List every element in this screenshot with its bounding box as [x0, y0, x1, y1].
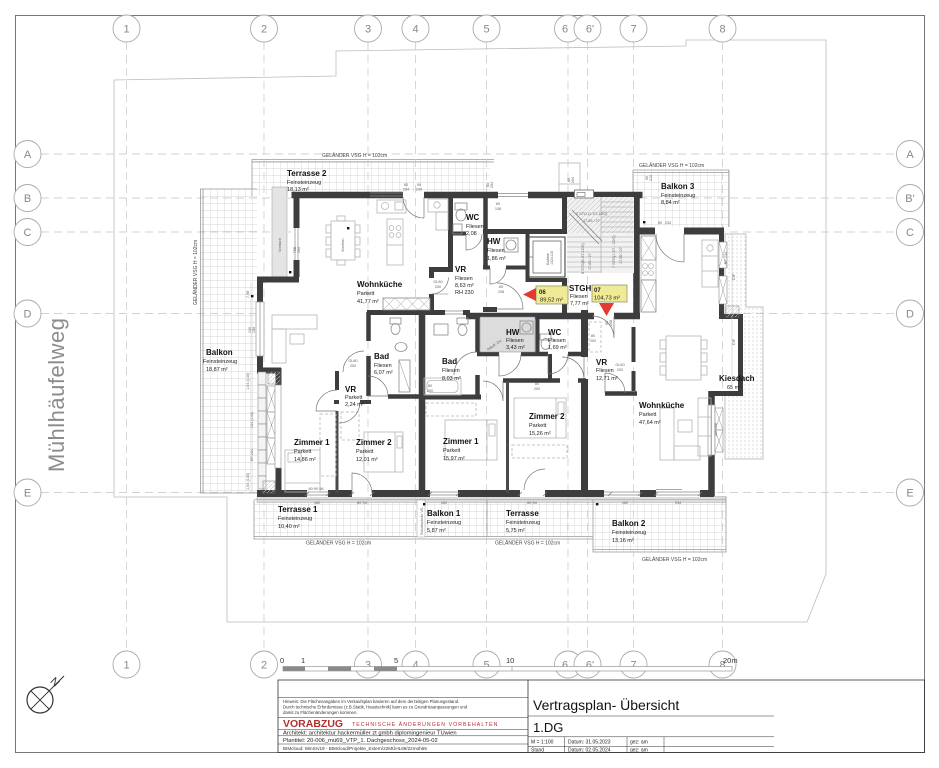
svg-text:10,40 m²: 10,40 m² — [278, 524, 300, 530]
svg-text:A: A — [906, 149, 914, 161]
svg-text:Schallschutz VS: Schallschutz VS — [420, 507, 424, 535]
svg-text:Feinsteinzeug: Feinsteinzeug — [278, 516, 312, 522]
svg-text:Fliesen: Fliesen — [487, 248, 505, 254]
svg-text:Terrasse 1: Terrasse 1 — [278, 505, 318, 514]
svg-text:DIF: DIF — [732, 338, 736, 345]
svg-text:D: D — [906, 309, 914, 321]
svg-text:Kiesdach: Kiesdach — [719, 374, 755, 383]
svg-text:3: 3 — [365, 24, 371, 36]
svg-text:VR: VR — [455, 265, 466, 274]
svg-text:Zimmer 1: Zimmer 1 — [294, 438, 330, 447]
svg-text:162: 162 — [314, 501, 320, 505]
svg-text:Fliesen: Fliesen — [442, 368, 460, 374]
svg-text:GELÄNDER VSG H = 102cm: GELÄNDER VSG H = 102cm — [322, 152, 387, 159]
svg-text:2: 2 — [261, 660, 267, 672]
svg-text:204: 204 — [297, 247, 301, 253]
svg-text:damit zu Flächenänderungen kom: damit zu Flächenänderungen kommen. — [283, 710, 358, 715]
svg-text:8 STG(B.ST-1DG): 8 STG(B.ST-1DG) — [581, 242, 585, 274]
svg-text:80·94: 80·94 — [357, 501, 367, 505]
svg-text:GELÄNDER VSG H = 102cm: GELÄNDER VSG H = 102cm — [639, 162, 704, 169]
svg-text:Parkett: Parkett — [356, 449, 374, 455]
svg-text:Fliesen: Fliesen — [374, 363, 392, 369]
svg-text:65 m²: 65 m² — [727, 385, 741, 391]
svg-text:C: C — [24, 227, 32, 239]
svg-text:Datum: 31.05.2023: Datum: 31.05.2023 — [568, 740, 611, 746]
svg-text:5,87 m²: 5,87 m² — [427, 528, 446, 534]
svg-text:Parkett: Parkett — [345, 395, 363, 401]
svg-text:Fliesen: Fliesen — [506, 338, 524, 344]
svg-text:Balkon: Balkon — [206, 348, 233, 357]
svg-text:RF 234: RF 234 — [724, 252, 728, 264]
svg-text:15,97 m²: 15,97 m² — [443, 456, 465, 462]
svg-text:7,77 m²: 7,77 m² — [570, 301, 589, 307]
svg-text:Durch technische Erfordernisse: Durch technische Erfordernisse (z.B.Stat… — [283, 705, 468, 710]
svg-text:1: 1 — [123, 24, 129, 36]
svg-text:3,43 m²: 3,43 m² — [506, 345, 525, 351]
svg-text:0: 0 — [280, 656, 284, 665]
svg-text:Terrasse 2: Terrasse 2 — [287, 169, 327, 178]
svg-text:14,86 m²: 14,86 m² — [294, 457, 316, 463]
svg-text:2: 2 — [261, 24, 267, 36]
svg-text:162: 162 — [441, 501, 447, 505]
svg-text:VR: VR — [596, 358, 607, 367]
svg-text:Datum: 02.05.2024: Datum: 02.05.2024 — [568, 748, 611, 754]
svg-text:234: 234 — [675, 501, 681, 505]
svg-text:Terrasse: Terrasse — [506, 509, 539, 518]
svg-text:DIF: DIF — [732, 273, 736, 280]
svg-text:Wohnküche: Wohnküche — [357, 280, 403, 289]
svg-text:Parkett: Parkett — [443, 448, 461, 454]
svg-text:Mühlhäufelweg: Mühlhäufelweg — [44, 318, 69, 472]
svg-text:GL80: GL80 — [348, 359, 357, 363]
svg-text:C: C — [906, 227, 914, 239]
svg-text:GELÄNDER VSG H = 102cm: GELÄNDER VSG H = 102cm — [642, 556, 707, 563]
svg-text:2,08: 2,08 — [466, 231, 477, 237]
svg-text:RF 234: RF 234 — [250, 449, 254, 461]
svg-text:Vordach: Vordach — [278, 238, 282, 252]
svg-text:204: 204 — [403, 188, 409, 192]
svg-text:06: 06 — [539, 290, 546, 296]
svg-text:204: 204 — [490, 182, 494, 188]
svg-text:Bad: Bad — [374, 352, 389, 361]
svg-text:Fliesen: Fliesen — [596, 368, 614, 374]
svg-text:18,87 m²: 18,87 m² — [206, 367, 228, 373]
svg-text:07: 07 — [594, 288, 601, 294]
svg-text:Parkett: Parkett — [529, 423, 547, 429]
svg-text:2 STG (1.ST-1DG): 2 STG (1.ST-1DG) — [576, 212, 608, 216]
svg-text:108: 108 — [495, 207, 501, 211]
svg-text:80: 80 — [658, 221, 662, 225]
svg-text:GL80: GL80 — [433, 280, 442, 284]
svg-text:TECHNISCHE ÄNDERUNGEN VORBEHAL: TECHNISCHE ÄNDERUNGEN VORBEHALTEN — [352, 721, 498, 728]
svg-text:Zimmer 2: Zimmer 2 — [529, 412, 565, 421]
svg-text:200: 200 — [435, 285, 441, 289]
svg-text:Vertragsplan- Übersicht: Vertragsplan- Übersicht — [533, 696, 679, 713]
svg-text:4: 4 — [412, 24, 418, 36]
svg-text:18,13 m²: 18,13 m² — [287, 187, 309, 193]
svg-text:D: D — [24, 309, 32, 321]
svg-text:142x110: 142x110 — [550, 251, 554, 265]
svg-text:E: E — [906, 488, 913, 500]
svg-text:Parkett: Parkett — [639, 412, 657, 418]
svg-text:Fliesen: Fliesen — [570, 294, 588, 300]
svg-text:1.DG: 1.DG — [533, 720, 563, 735]
svg-text:150: 150 — [252, 327, 256, 333]
svg-text:8,84 m²: 8,84 m² — [661, 200, 680, 206]
svg-text:13,16 m²: 13,16 m² — [612, 538, 634, 544]
svg-text:15,26 m²: 15,26 m² — [529, 431, 551, 437]
svg-text:80: 80 — [499, 285, 503, 289]
svg-text:VR: VR — [345, 385, 356, 394]
svg-text:210: 210 — [649, 175, 653, 181]
svg-text:47,64 m²: 47,64 m² — [639, 420, 661, 426]
svg-text:6: 6 — [562, 24, 568, 36]
svg-text:Wohnküche: Wohnküche — [639, 401, 685, 410]
svg-text:5,75 m²: 5,75 m² — [506, 528, 525, 534]
svg-text:10: 10 — [506, 656, 514, 665]
svg-text:WC: WC — [466, 213, 480, 222]
svg-text:5: 5 — [394, 656, 398, 665]
svg-text:VORABZUG: VORABZUG — [283, 718, 343, 730]
svg-text:Kochen: Kochen — [341, 239, 345, 252]
svg-text:12,71 m²: 12,71 m² — [596, 376, 618, 382]
svg-text:17,65 / 27: 17,65 / 27 — [619, 247, 623, 264]
svg-text:186 198: 186 198 — [714, 423, 718, 437]
svg-text:1,86 m²: 1,86 m² — [487, 256, 506, 262]
svg-text:Parkett: Parkett — [294, 449, 312, 455]
svg-text:200: 200 — [590, 339, 596, 343]
svg-text:1,04 (140): 1,04 (140) — [246, 372, 250, 390]
svg-text:80: 80 — [404, 183, 408, 187]
svg-text:1: 1 — [123, 660, 129, 672]
svg-text:204: 204 — [416, 188, 422, 192]
svg-text:1,04 (140): 1,04 (140) — [246, 472, 250, 490]
svg-text:17,65 / 27: 17,65 / 27 — [588, 253, 592, 270]
svg-text:Bad: Bad — [442, 357, 457, 366]
svg-text:204: 204 — [571, 177, 575, 183]
svg-text:8,03 m²: 8,03 m² — [442, 376, 461, 382]
svg-text:7,98: 7,98 — [246, 291, 250, 298]
svg-text:HW: HW — [506, 328, 520, 337]
svg-text:8,63 m²: 8,63 m² — [455, 283, 474, 289]
svg-text:80: 80 — [591, 334, 595, 338]
svg-text:GL60: GL60 — [615, 363, 624, 367]
svg-text:1,69 m²: 1,69 m² — [548, 345, 567, 351]
svg-text:HW: HW — [487, 237, 501, 246]
svg-text:104,73 m²: 104,73 m² — [594, 296, 620, 302]
svg-text:gez: am: gez: am — [630, 740, 648, 746]
svg-text:B: B — [24, 193, 31, 205]
svg-text:134 (140): 134 (140) — [250, 411, 254, 428]
svg-text:89,52 m²: 89,52 m² — [540, 298, 563, 304]
svg-text:Feinsteinzeug: Feinsteinzeug — [203, 359, 237, 365]
svg-text:208: 208 — [498, 290, 504, 294]
svg-text:200: 200 — [534, 387, 540, 391]
svg-text:E: E — [24, 488, 31, 500]
svg-text:Stand: Stand — [531, 748, 544, 754]
svg-text:WC: WC — [548, 328, 562, 337]
svg-text:BIMcloud: WinSrv19 - BIMcloud/: BIMcloud: WinSrv19 - BIMcloud/Projekte_E… — [283, 745, 427, 751]
svg-text:Feinsteinzeug: Feinsteinzeug — [287, 180, 321, 186]
svg-text:41,77 m²: 41,77 m² — [357, 299, 379, 305]
svg-text:200: 200 — [350, 364, 356, 368]
svg-text:Feinsteinzeug: Feinsteinzeug — [612, 530, 646, 536]
svg-text:RH 230: RH 230 — [455, 290, 474, 296]
svg-text:1: 1 — [301, 656, 305, 665]
svg-text:60: 60 — [496, 202, 500, 206]
svg-text:Feinsteinzeug: Feinsteinzeug — [506, 520, 540, 526]
svg-text:80: 80 — [535, 382, 539, 386]
svg-text:Zimmer 1: Zimmer 1 — [443, 437, 479, 446]
svg-text:200: 200 — [427, 389, 433, 393]
svg-text:gez: am: gez: am — [630, 748, 648, 754]
svg-text:5: 5 — [483, 24, 489, 36]
svg-text:234: 234 — [665, 221, 671, 225]
svg-text:7: 7 — [630, 24, 636, 36]
svg-text:20m: 20m — [723, 656, 738, 665]
svg-text:80: 80 — [428, 384, 432, 388]
svg-text:Feinsteinzeug: Feinsteinzeug — [427, 520, 461, 526]
svg-text:Plantitel: 20-006_mü69_VTP_: Plantitel: 20-006_mü69_VTP_1. Dachgescho… — [283, 738, 438, 744]
svg-text:GELÄNDER VSG H = 102cm: GELÄNDER VSG H = 102cm — [495, 540, 560, 547]
svg-text:162: 162 — [622, 501, 628, 505]
svg-text:200: 200 — [617, 368, 623, 372]
svg-text:STGH: STGH — [569, 284, 591, 293]
svg-text:Fliesen: Fliesen — [466, 224, 484, 230]
svg-text:Balkon 2: Balkon 2 — [612, 519, 646, 528]
svg-text:Feinsteinzeug: Feinsteinzeug — [661, 193, 695, 199]
svg-text:8: 8 — [719, 24, 725, 36]
svg-text:Parkett: Parkett — [357, 291, 375, 297]
svg-text:80·90 96: 80·90 96 — [309, 487, 324, 491]
svg-text:80·94: 80·94 — [527, 501, 537, 505]
svg-text:Zimmer 2: Zimmer 2 — [356, 438, 392, 447]
svg-text:A: A — [24, 149, 32, 161]
svg-text:6': 6' — [586, 24, 594, 36]
svg-text:Architekt: architektur hacke: Architekt: architektur hackermüller zt g… — [283, 731, 457, 737]
svg-text:GELÄNDER VSG H = 102cm: GELÄNDER VSG H = 102cm — [306, 540, 371, 547]
svg-text:M = 1:100: M = 1:100 — [531, 740, 554, 746]
svg-text:Balkon 3: Balkon 3 — [661, 182, 695, 191]
svg-text:208: 208 — [609, 320, 613, 326]
svg-text:Balkon 1: Balkon 1 — [427, 509, 461, 518]
svg-text:Fliesen: Fliesen — [455, 276, 473, 282]
svg-text:7 STG(1.ST - 1DG): 7 STG(1.ST - 1DG) — [612, 235, 616, 268]
svg-text:Fliesen: Fliesen — [548, 338, 566, 344]
svg-text:GELÄNDER VSG H = 102cm: GELÄNDER VSG H = 102cm — [192, 240, 199, 305]
svg-text:Hinweis: Die Flächenangaben im: Hinweis: Die Flächenangaben im Verkaufsp… — [283, 699, 459, 704]
svg-text:6,07 m²: 6,07 m² — [374, 370, 393, 376]
svg-text:12,01 m²: 12,01 m² — [356, 457, 378, 463]
svg-text:2,24 m²: 2,24 m² — [345, 402, 364, 408]
svg-text:90: 90 — [417, 183, 421, 187]
svg-text:B': B' — [905, 193, 914, 205]
svg-text:17,65 / 27: 17,65 / 27 — [583, 219, 600, 223]
